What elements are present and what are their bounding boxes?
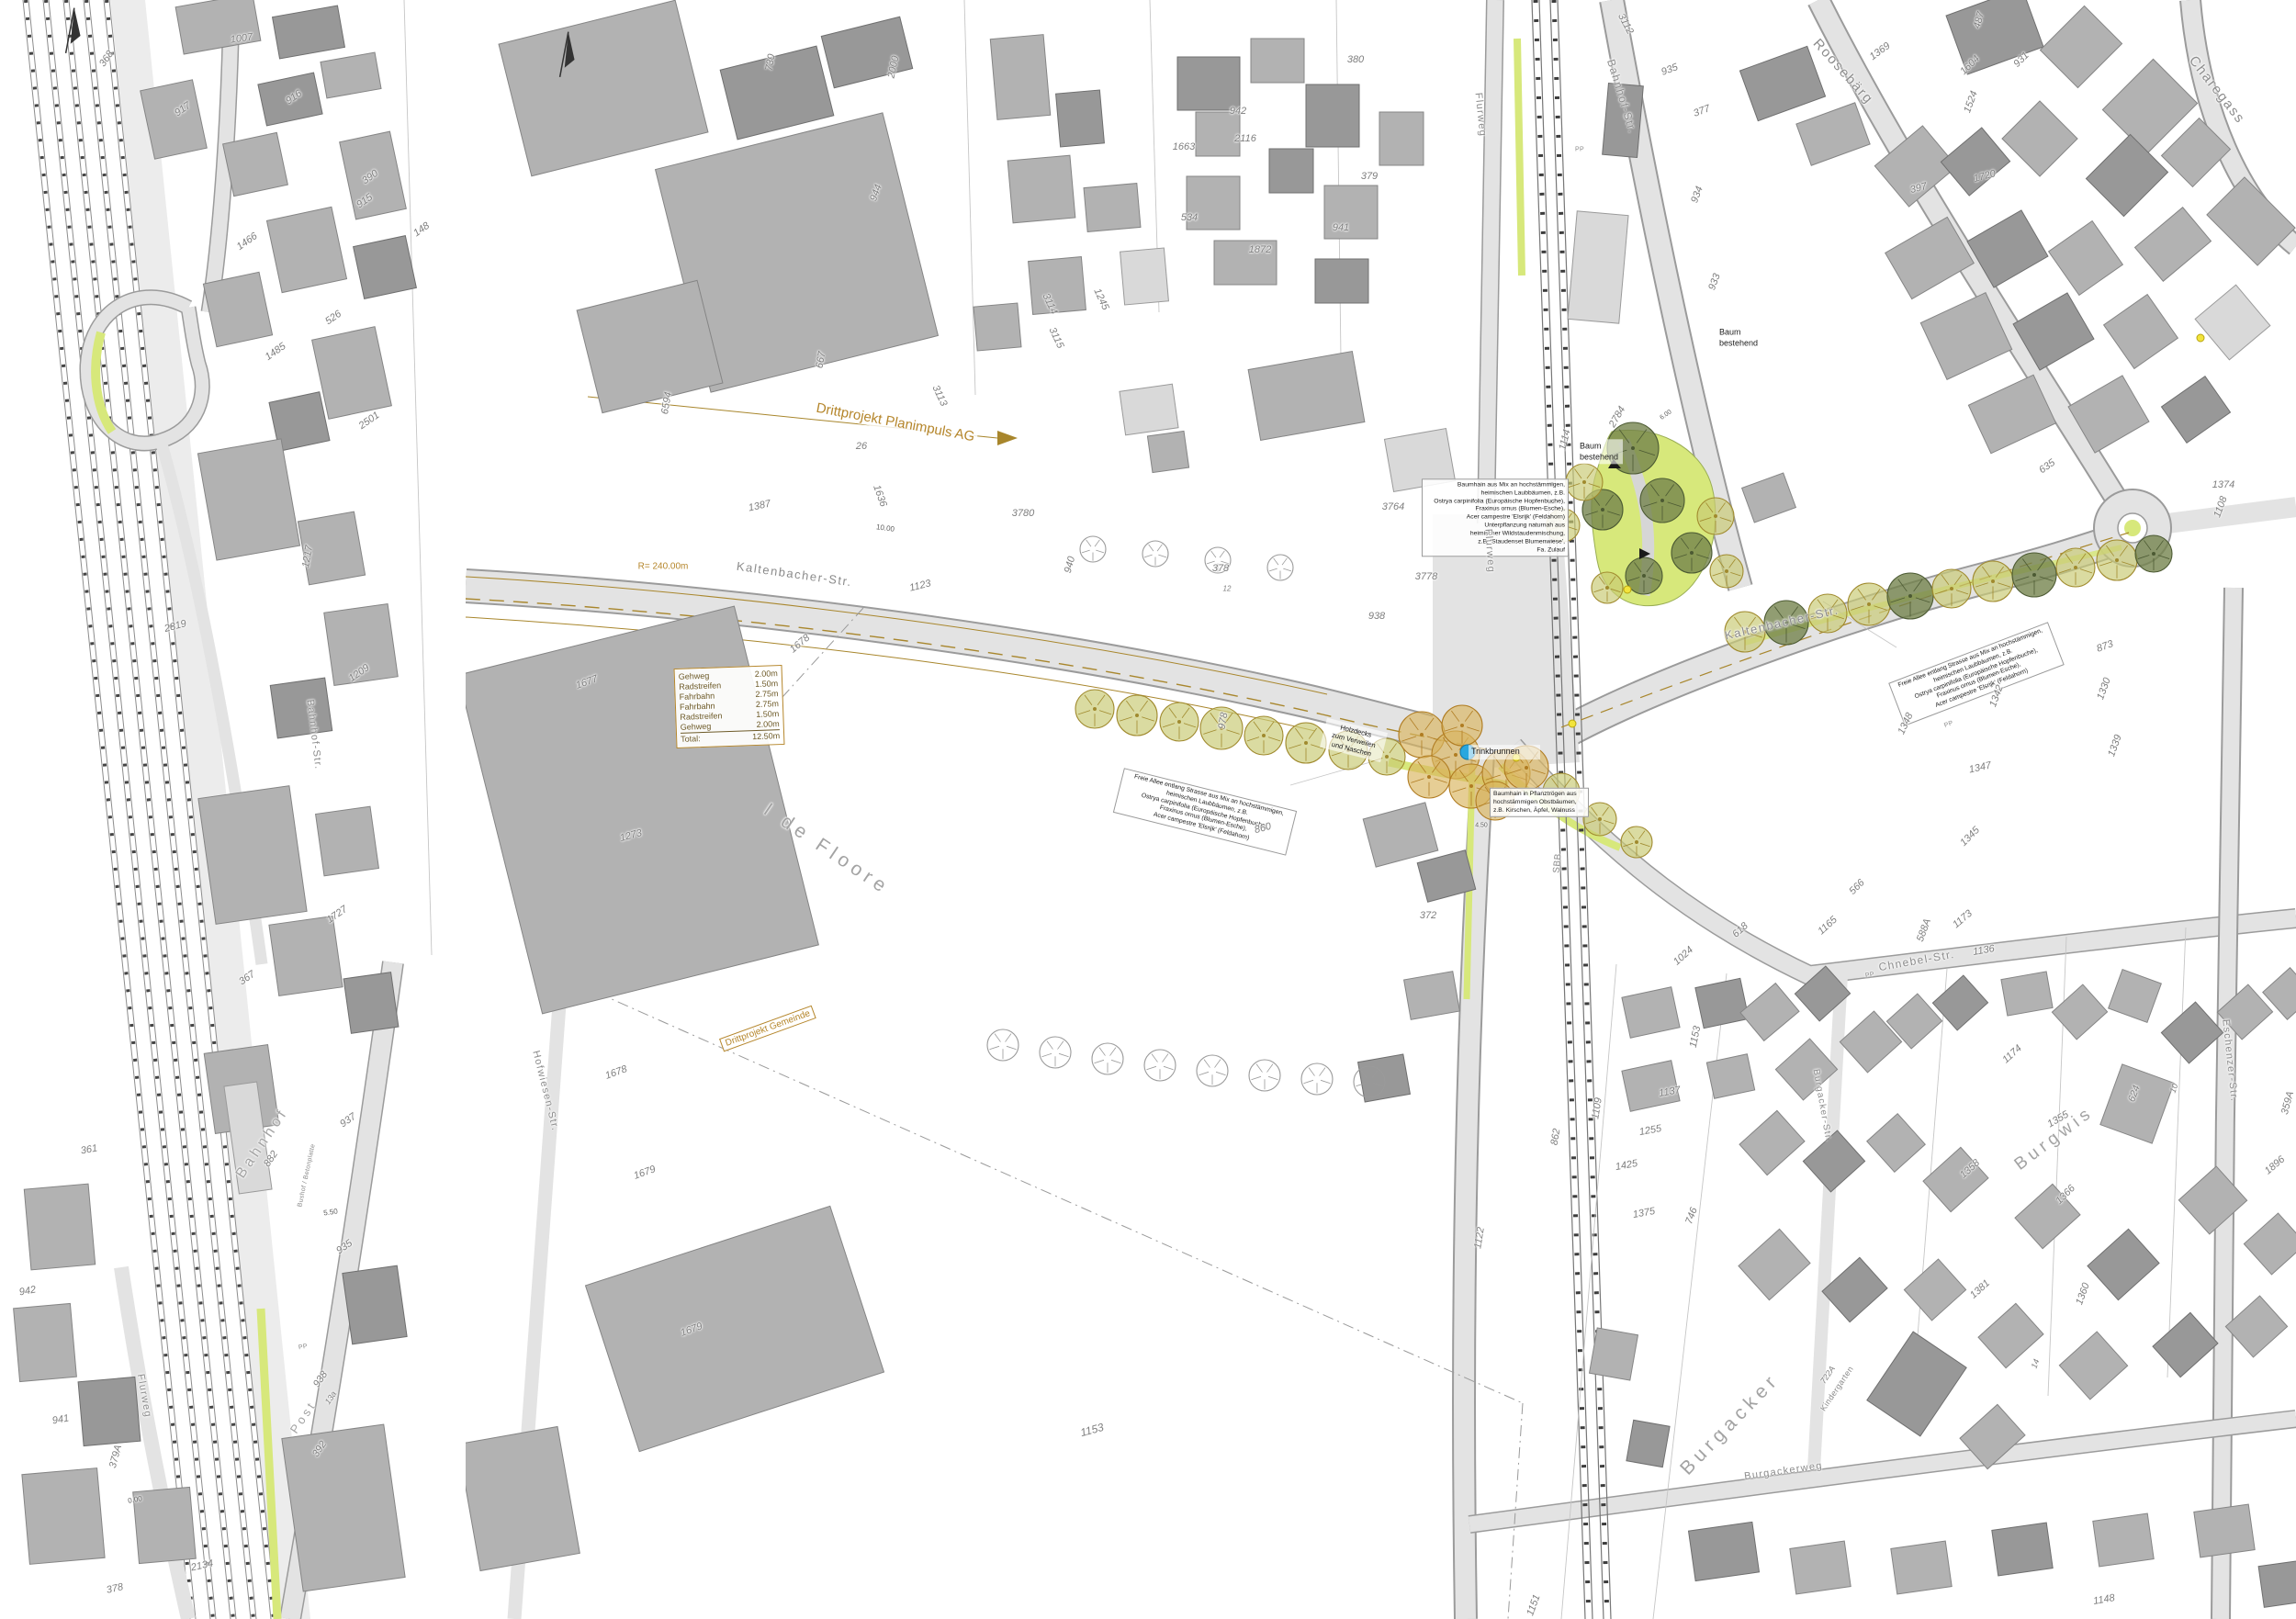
tree-symbol [1543, 773, 1580, 810]
building [2088, 1229, 2159, 1299]
tree-symbol [1848, 583, 1890, 625]
building [2195, 285, 2270, 360]
building [258, 73, 322, 126]
building [1568, 211, 1628, 323]
building [266, 207, 346, 292]
building [1822, 1257, 1887, 1321]
building [1084, 184, 1141, 232]
building [1622, 987, 1680, 1038]
tree-symbol [1547, 509, 1580, 542]
building [1177, 57, 1240, 110]
tree-symbol [1764, 601, 1808, 645]
building [316, 806, 379, 876]
tree-symbol [987, 1029, 1019, 1061]
building [1867, 1114, 1926, 1173]
building [2225, 1296, 2287, 1357]
total-value: 12.50m [752, 731, 780, 742]
building [2001, 972, 2053, 1016]
building [1796, 103, 1870, 165]
row-value: 2.00m [755, 669, 778, 680]
tree-symbol [1368, 738, 1405, 775]
row-value: 2.75m [756, 699, 779, 710]
building [1790, 1541, 1851, 1594]
building [2135, 208, 2212, 281]
building [312, 327, 392, 420]
row-value: 1.50m [755, 679, 778, 690]
building [1379, 112, 1424, 165]
tree-symbol [1408, 756, 1450, 798]
panel-gutter [447, 0, 466, 1619]
building [2052, 984, 2107, 1040]
tree-symbol [1329, 731, 1367, 770]
tree-symbol [1144, 1050, 1176, 1081]
building [1941, 128, 2009, 196]
building [1029, 257, 1086, 315]
building [203, 272, 272, 346]
building [2109, 970, 2162, 1023]
tree-symbol [1117, 695, 1157, 736]
building [1306, 84, 1359, 147]
building [2040, 6, 2122, 87]
tree-symbol [1244, 716, 1283, 755]
building [2258, 1560, 2296, 1608]
building [1196, 112, 1240, 156]
building [2207, 177, 2295, 265]
building [324, 604, 398, 686]
building [1315, 259, 1368, 303]
tree-symbol [1092, 1043, 1123, 1074]
base-map-graphics [0, 0, 2296, 1619]
tree-symbol [1442, 705, 1482, 746]
cross-section-table: Gehweg2.00m Radstreifen1.50m Fahrbahn2.7… [674, 665, 785, 748]
tree-symbol [1887, 573, 1933, 619]
building [2194, 1504, 2255, 1557]
tree-symbol [1725, 612, 1765, 652]
row-label: Gehweg [681, 722, 712, 733]
building [298, 512, 365, 585]
tree-symbol [1197, 1055, 1228, 1086]
building [585, 1206, 884, 1451]
building [1992, 1523, 2053, 1576]
building [1891, 1541, 1952, 1594]
building [1269, 149, 1313, 193]
building [175, 0, 261, 54]
building [2059, 1332, 2127, 1400]
tree-symbol [1476, 781, 1514, 820]
building [273, 6, 345, 59]
building [1923, 1147, 1988, 1211]
tree-symbol [1301, 1063, 1333, 1095]
building [2161, 377, 2230, 444]
tree-symbol [2097, 540, 2137, 580]
building [22, 1468, 105, 1565]
tree-symbol [1671, 533, 1712, 573]
building [1742, 473, 1796, 523]
building [1867, 1332, 1966, 1436]
building [1603, 83, 1644, 157]
tree-symbol [1710, 555, 1743, 588]
building [321, 52, 381, 98]
table-total-row: Total:12.50m [681, 731, 780, 745]
tree-symbol [1932, 569, 1971, 608]
building [78, 1377, 141, 1445]
building [2244, 1213, 2296, 1275]
building [354, 236, 417, 299]
building [1706, 1054, 1754, 1098]
building [1214, 241, 1277, 285]
building [2049, 221, 2123, 296]
tree-symbol [1267, 555, 1293, 580]
building [1740, 984, 1799, 1041]
building [2015, 1184, 2080, 1248]
building [1946, 0, 2043, 74]
building [2178, 1166, 2246, 1234]
tree-symbol [1205, 547, 1231, 573]
building [14, 1303, 77, 1381]
building [133, 1487, 197, 1563]
building [1695, 978, 1749, 1028]
tree-symbol [1640, 478, 1684, 523]
building [1248, 352, 1365, 441]
building [1739, 1229, 1810, 1299]
tree-symbol [1249, 1060, 1280, 1091]
building [1590, 1328, 1638, 1380]
tree-symbol [1286, 723, 1326, 763]
building [340, 131, 407, 219]
building [1120, 248, 1169, 305]
building [269, 916, 343, 996]
tree-symbol [2012, 553, 2056, 597]
building [458, 1427, 580, 1571]
building [1978, 1303, 2043, 1367]
building [1622, 1061, 1680, 1111]
tree-symbol [2056, 548, 2095, 587]
tree-symbol [1200, 707, 1243, 749]
building [1803, 1130, 1864, 1192]
building [2100, 1064, 2174, 1143]
building [821, 17, 912, 88]
building [343, 973, 399, 1034]
building [1120, 384, 1178, 435]
building [1626, 1420, 1670, 1467]
building [1147, 431, 1188, 472]
building [282, 1424, 405, 1591]
building [223, 132, 288, 196]
building [1007, 155, 1075, 223]
building [1384, 429, 1455, 492]
building [720, 46, 834, 140]
tree-symbol [1160, 703, 1199, 741]
tree-symbol [1504, 746, 1548, 790]
building [197, 439, 299, 560]
tree-symbol [1697, 498, 1734, 534]
row-label: Radstreifen [680, 711, 722, 723]
building [1187, 176, 1240, 230]
tree-symbol [1973, 561, 2013, 602]
building [24, 1184, 95, 1270]
building [2002, 101, 2077, 176]
buildings [14, 0, 2296, 1607]
tree-symbol [1592, 572, 1623, 603]
building [2153, 1312, 2218, 1377]
tree-symbol [1566, 464, 1603, 500]
building [1904, 1259, 1965, 1321]
building [2161, 1002, 2223, 1063]
trees [987, 422, 2172, 1097]
site-plan: Baumhain aus Mix an hochstämmigen, heimi… [0, 0, 2296, 1619]
building [1739, 1110, 1805, 1175]
building [1251, 39, 1304, 83]
tree-symbol [1142, 541, 1168, 567]
building [1689, 1522, 1760, 1580]
building [1404, 972, 1460, 1020]
tree-symbol [1808, 594, 1847, 633]
building [1739, 46, 1825, 120]
tree-symbol [1040, 1037, 1071, 1068]
building [990, 35, 1050, 120]
building [577, 280, 723, 412]
row-value: 1.50m [756, 709, 779, 720]
building [198, 786, 307, 925]
building [1363, 803, 1438, 867]
drinking-fountain-icon [1460, 745, 1475, 759]
building [2093, 1513, 2154, 1567]
building [343, 1265, 407, 1344]
building [1056, 90, 1105, 147]
building [270, 678, 332, 738]
tree-symbol [1075, 690, 1114, 728]
row-value: 2.75m [755, 689, 778, 700]
tree-symbol [1080, 536, 1106, 562]
building [1324, 186, 1378, 239]
row-value: 2.00m [757, 719, 780, 730]
tree-symbol [1583, 803, 1616, 836]
building [2104, 295, 2178, 369]
tree-symbol [2135, 535, 2172, 572]
building [499, 0, 708, 176]
building [2086, 134, 2167, 216]
total-label: Total: [681, 734, 701, 745]
row-label: Radstreifen [679, 680, 721, 692]
building [1775, 1039, 1837, 1100]
building [974, 303, 1021, 351]
tree-symbol [1621, 826, 1652, 858]
